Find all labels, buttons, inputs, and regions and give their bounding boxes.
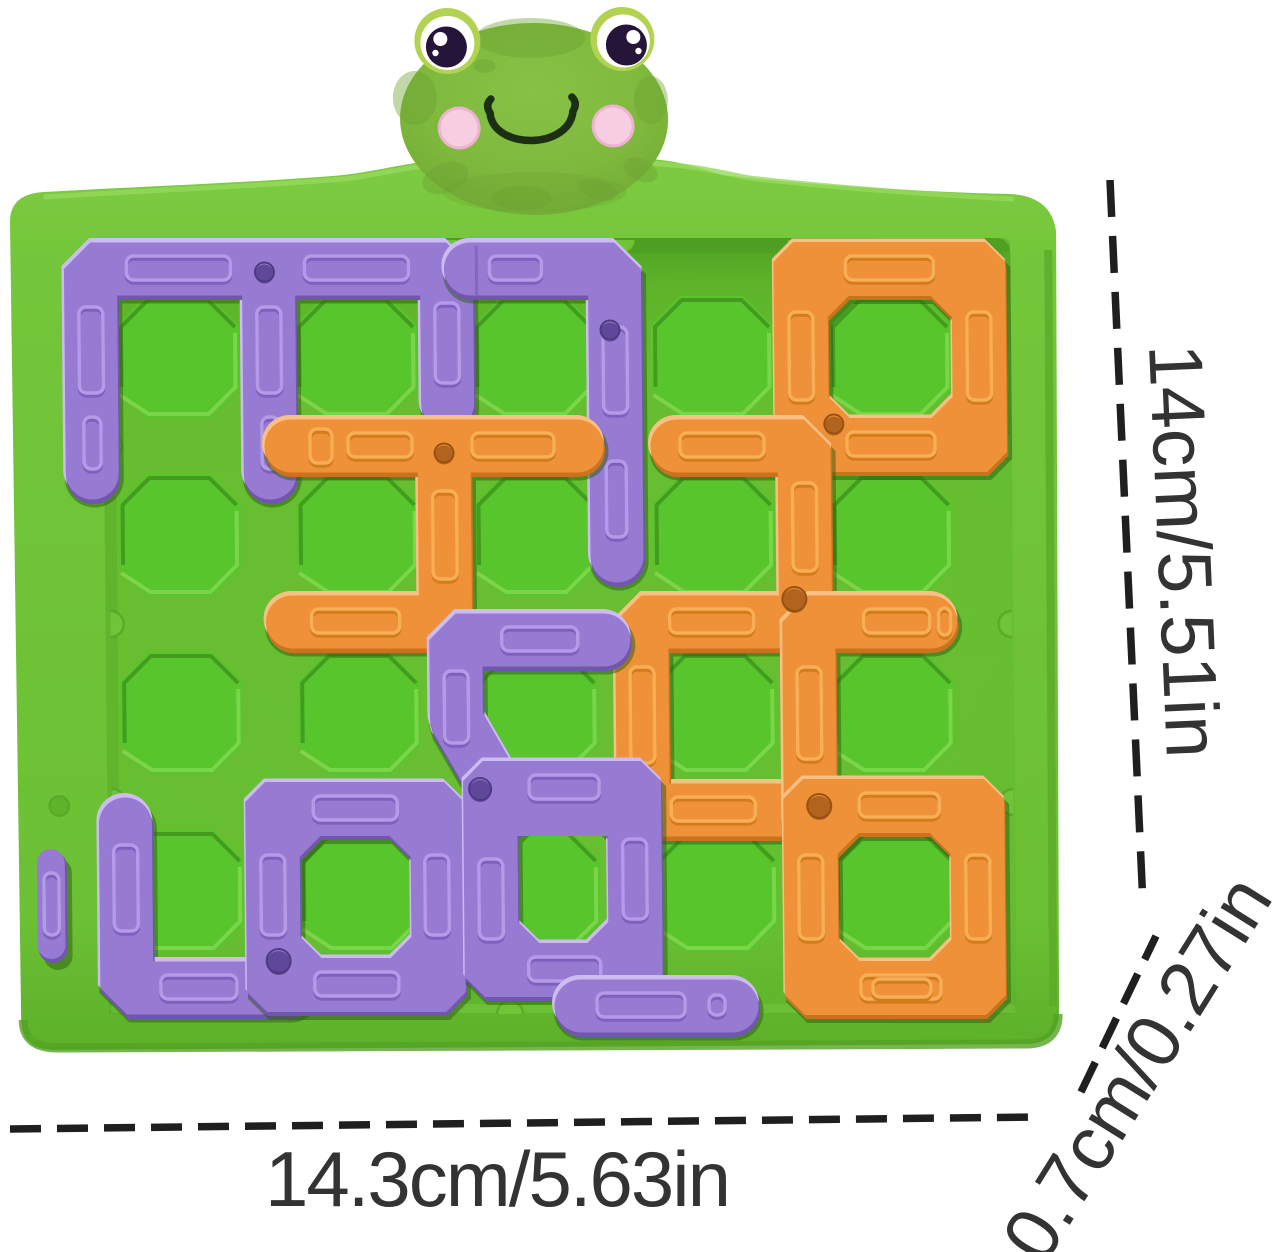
svg-text:14.3cm/5.63in: 14.3cm/5.63in xyxy=(265,1135,729,1223)
svg-text:14cm/5.51in: 14cm/5.51in xyxy=(1132,342,1235,759)
